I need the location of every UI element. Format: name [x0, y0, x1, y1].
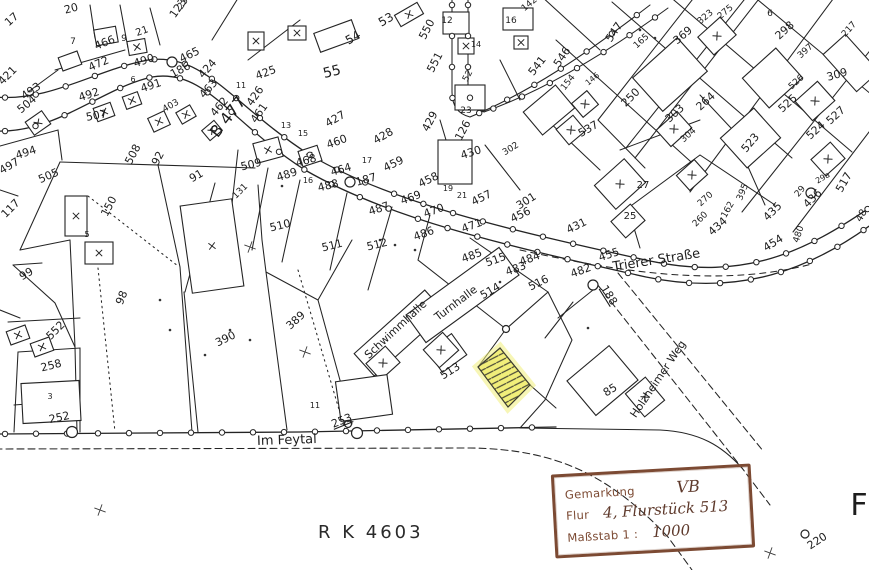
- survey-point-icon: [449, 64, 454, 69]
- survey-point-icon: [250, 430, 255, 435]
- parcel-label: 508: [122, 142, 143, 167]
- survey-point-icon: [465, 33, 470, 38]
- plan-number: R K 4603: [318, 522, 424, 543]
- parcel-label: 458: [416, 169, 441, 190]
- street-label: B 477: [206, 92, 250, 140]
- boundary-dot-icon: [414, 249, 417, 252]
- survey-point-icon: [357, 194, 362, 199]
- parcel-label: 484: [518, 249, 542, 268]
- building: [572, 91, 599, 118]
- survey-point-icon: [601, 49, 606, 54]
- parcel-label: 3: [47, 392, 52, 401]
- survey-point-icon: [835, 244, 840, 249]
- building: [288, 26, 306, 40]
- boundary-dot-icon: [169, 329, 172, 332]
- survey-point-icon: [450, 95, 455, 100]
- parcel-label: 13: [281, 121, 291, 130]
- parcel-label: 390: [213, 328, 238, 349]
- parcel-label: 429: [419, 109, 440, 134]
- survey-point-icon: [421, 201, 426, 206]
- survey-point-icon: [717, 280, 722, 285]
- survey-point-icon: [754, 259, 759, 264]
- boundary-dot-icon: [281, 185, 284, 188]
- survey-point-icon: [529, 425, 534, 430]
- survey-point-icon: [126, 430, 131, 435]
- survey-point-icon: [62, 113, 67, 118]
- survey-point-icon: [374, 428, 379, 433]
- parcel-label: 421: [0, 64, 20, 88]
- survey-point-icon: [475, 234, 480, 239]
- survey-point-icon: [2, 128, 7, 133]
- parcel-label: 117: [0, 197, 23, 221]
- parcel-label: 517: [833, 170, 855, 195]
- survey-point-icon: [2, 95, 7, 100]
- survey-point-icon: [63, 84, 68, 89]
- parcel-label: 258: [39, 357, 63, 375]
- survey-point-icon: [67, 427, 78, 438]
- survey-point-icon: [276, 149, 281, 154]
- parcel-label: 511: [320, 237, 344, 255]
- parcel-label: 471: [460, 216, 484, 235]
- building: [180, 199, 244, 293]
- survey-point-icon: [391, 191, 396, 196]
- parcel-label: 55: [321, 62, 342, 82]
- boundary-dot-icon: [499, 281, 502, 284]
- edge-letter: F: [850, 488, 867, 523]
- survey-point-icon: [157, 430, 162, 435]
- parcel-label: 427: [323, 108, 348, 130]
- boundary-dot-icon: [204, 354, 207, 357]
- parcel-label: 21: [134, 24, 150, 39]
- parcel-label: 5: [84, 230, 89, 239]
- survey-point-icon: [801, 530, 809, 538]
- parcel-label: 99: [17, 265, 36, 283]
- survey-point-icon: [584, 49, 589, 54]
- parcel-label: 7: [70, 37, 76, 47]
- survey-point-icon: [449, 2, 454, 7]
- parcel-label: 425: [254, 63, 278, 82]
- parcel-label: 524: [804, 119, 828, 143]
- building: [176, 105, 196, 124]
- survey-point-icon: [532, 82, 537, 87]
- building: [394, 2, 423, 26]
- survey-point-icon: [95, 431, 100, 436]
- parcel-label: 52: [461, 69, 475, 84]
- survey-point-icon: [498, 425, 503, 430]
- parcel-label: 492: [77, 85, 101, 104]
- survey-point-icon: [415, 216, 420, 221]
- parcel-label: 486: [412, 224, 436, 243]
- stamp-gemarkung-value: VB: [676, 474, 701, 498]
- boundary-dot-icon: [654, 37, 657, 40]
- stamp-massstab-label: Maßstab 1 :: [567, 526, 639, 547]
- parcel-label: 469: [399, 188, 423, 207]
- survey-point-icon: [118, 85, 123, 90]
- survey-point-icon: [467, 95, 472, 100]
- survey-point-icon: [219, 430, 224, 435]
- parcel-label: 507: [85, 107, 108, 123]
- parcel-label: 19: [443, 184, 453, 193]
- survey-point-icon: [723, 264, 728, 269]
- parcel-label: 146: [584, 71, 601, 88]
- parcel-label: 546: [551, 45, 574, 70]
- survey-point-icon: [2, 431, 7, 436]
- parcel-label: 460: [325, 132, 349, 151]
- survey-point-icon: [345, 177, 355, 187]
- survey-point-icon: [627, 32, 632, 37]
- parcel-label: 489: [275, 165, 299, 184]
- parcel-label: 217: [840, 20, 859, 39]
- parcel-label: 53: [376, 10, 396, 30]
- cross-mark-icon: [242, 239, 257, 254]
- survey-point-icon: [467, 426, 472, 431]
- parcel-label: 395: [735, 182, 751, 202]
- survey-point-icon: [812, 238, 817, 243]
- survey-point-icon: [686, 280, 691, 285]
- parcel-label: 20: [63, 1, 80, 17]
- building: [25, 111, 51, 136]
- stamp-massstab-value: 1000: [651, 520, 690, 544]
- parcel-label: 11: [236, 81, 246, 90]
- survey-point-icon: [519, 94, 524, 99]
- parcel-label: 480: [792, 224, 807, 244]
- parcel-label: 6: [767, 9, 773, 19]
- parcel-label: 424: [196, 57, 220, 81]
- building: [122, 92, 141, 110]
- parcel-label: 482: [569, 261, 593, 280]
- boundary-dot-icon: [639, 29, 642, 32]
- surveyor-stamp: Gemarkung VB Flur 4, Flurstück 513 Maßst…: [551, 463, 755, 558]
- parcel-label: 512: [365, 236, 389, 254]
- parcel-label: 16: [505, 16, 517, 26]
- parcel-label: 98: [113, 289, 130, 307]
- survey-point-icon: [465, 2, 470, 7]
- survey-point-icon: [33, 123, 38, 128]
- survey-point-icon: [595, 263, 600, 268]
- parcel-label: 488: [316, 177, 340, 195]
- parcel-label: 25: [624, 211, 637, 222]
- parcel-label: 91: [187, 167, 206, 185]
- building: [58, 51, 82, 71]
- survey-point-icon: [634, 12, 639, 17]
- survey-point-icon: [748, 277, 753, 282]
- survey-point-icon: [188, 430, 193, 435]
- survey-point-icon: [449, 33, 454, 38]
- parcel-label: 465: [177, 44, 202, 65]
- parcel-label: 16: [303, 176, 313, 185]
- building: [676, 160, 707, 191]
- survey-point-icon: [121, 63, 126, 68]
- boundary-dot-icon: [394, 244, 397, 247]
- survey-point-icon: [491, 106, 496, 111]
- survey-point-icon: [778, 269, 783, 274]
- parcel-label: 27: [637, 180, 650, 191]
- parcel-label: 468: [294, 151, 318, 169]
- survey-point-icon: [450, 210, 455, 215]
- parcel-label: 270: [696, 190, 716, 209]
- parcel-label: 298: [773, 19, 797, 43]
- parcel-label: 454: [761, 232, 786, 254]
- survey-point-icon: [436, 427, 441, 432]
- parcel-label: 537: [576, 118, 601, 140]
- parcel-label: 165: [632, 32, 651, 51]
- survey-point-icon: [343, 428, 348, 433]
- parcel-label: 463: [197, 77, 221, 101]
- parcel-label: 302: [501, 141, 521, 159]
- parcel-label: 494: [14, 143, 38, 162]
- survey-point-icon: [510, 227, 515, 232]
- street-label: Trierer Straße: [611, 246, 702, 275]
- building: [85, 242, 113, 264]
- parcel-label: 509: [239, 156, 263, 174]
- survey-point-icon: [92, 73, 97, 78]
- survey-point-icon: [252, 130, 257, 135]
- building: [567, 346, 638, 416]
- parcel-label: 431: [564, 215, 589, 236]
- boundary-dot-icon: [159, 299, 162, 302]
- parcel-label: 150: [98, 194, 119, 219]
- parcel-label: 154: [559, 73, 578, 93]
- survey-point-icon: [352, 428, 363, 439]
- survey-point-icon: [540, 234, 545, 239]
- parcel-label: 12: [441, 16, 452, 26]
- survey-point-icon: [588, 280, 598, 290]
- survey-point-icon: [505, 242, 510, 247]
- street-label: Im Feytal: [257, 432, 317, 449]
- survey-point-icon: [565, 256, 570, 261]
- parcel-label: 550: [416, 17, 437, 42]
- parcel-label: 17: [362, 156, 372, 165]
- stamp-flur-label: Flur: [566, 507, 590, 525]
- survey-point-icon: [692, 264, 697, 269]
- parcel-label: 551: [424, 50, 445, 75]
- parcel-label: 459: [381, 153, 406, 174]
- highlighted-parcel-513[interactable]: [478, 348, 530, 407]
- parcel-label: 275: [716, 3, 736, 22]
- survey-point-icon: [503, 326, 510, 333]
- survey-point-icon: [282, 134, 287, 139]
- survey-point-icon: [570, 241, 575, 246]
- survey-point-icon: [783, 251, 788, 256]
- parcel-label: 389: [284, 309, 308, 333]
- cadastral-map-sheet: B 477Trierer StraßeIm FeytalHolzheimer W…: [0, 0, 869, 570]
- survey-point-icon: [652, 15, 657, 20]
- survey-point-icon: [445, 225, 450, 230]
- parcel-label: 516: [526, 272, 551, 293]
- parcel-label: 428: [371, 125, 396, 147]
- survey-point-icon: [547, 80, 552, 85]
- building: [514, 36, 528, 49]
- survey-point-icon: [476, 110, 481, 115]
- parcel-label: 457: [469, 187, 494, 208]
- parcel-label: 11: [310, 401, 320, 410]
- survey-point-icon: [839, 223, 844, 228]
- boundary-dot-icon: [249, 339, 252, 342]
- survey-point-icon: [574, 65, 579, 70]
- boundary-dot-icon: [587, 327, 590, 330]
- parcel-label: 541: [526, 54, 549, 79]
- parcel-label: 14: [471, 40, 481, 49]
- cross-mark-icon: [762, 545, 777, 560]
- stamp-gemarkung-label: Gemarkung: [565, 483, 636, 504]
- cross-mark-icon: [92, 502, 107, 517]
- building: [6, 325, 30, 345]
- survey-point-icon: [405, 427, 410, 432]
- building: [248, 32, 264, 50]
- survey-point-icon: [861, 227, 866, 232]
- parcel-label: 23: [460, 106, 471, 116]
- survey-point-icon: [504, 97, 509, 102]
- parcel-label: 15: [298, 129, 308, 138]
- cross-mark-icon: [297, 344, 312, 359]
- survey-point-icon: [656, 277, 661, 282]
- parcel-label: 17: [2, 10, 21, 29]
- survey-point-icon: [807, 258, 812, 263]
- parcel-label: 9: [121, 34, 127, 44]
- survey-point-icon: [33, 431, 38, 436]
- parcel-label: 21: [457, 191, 467, 200]
- parcel-label: 188: [598, 283, 620, 308]
- parcel-label: 6: [130, 75, 135, 84]
- parcel-label: 126: [452, 118, 473, 143]
